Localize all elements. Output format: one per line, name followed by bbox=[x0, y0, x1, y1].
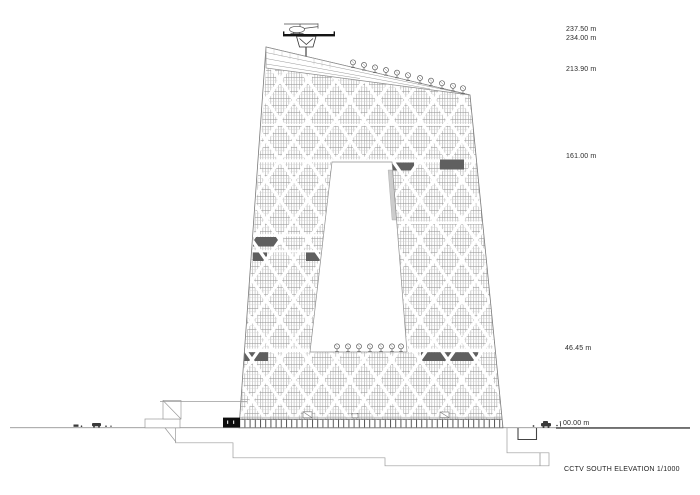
entrance-block bbox=[223, 418, 240, 428]
satellite-dish-icon bbox=[373, 65, 378, 73]
elevation-label-46-45: 46.45 m bbox=[565, 345, 591, 352]
satellite-dish-icon bbox=[357, 344, 362, 352]
satellite-dish-icon bbox=[429, 78, 434, 86]
satellite-dish-icon bbox=[346, 344, 351, 352]
elevation-label-234-00: 234.00 m bbox=[566, 35, 596, 42]
satellite-dish-icon bbox=[440, 81, 445, 89]
elevation-label-213-90: 213.90 m bbox=[566, 66, 596, 73]
satellite-dish-icon bbox=[395, 70, 400, 78]
satellite-dish-icon bbox=[406, 73, 411, 81]
satellite-dish-icon bbox=[362, 62, 367, 70]
drawing-title-caption: CCTV SOUTH ELEVATION 1/1000 bbox=[564, 466, 680, 473]
elevation-drawing bbox=[0, 0, 700, 495]
dark-panel-161m bbox=[440, 160, 464, 170]
satellite-dish-icon bbox=[351, 60, 356, 68]
car-icon bbox=[74, 425, 79, 427]
elevation-label-00-00: 00.00 m bbox=[563, 420, 589, 427]
elevation-drawing-sheet: 237.50 m 234.00 m 213.90 m 161.00 m 46.4… bbox=[0, 0, 700, 495]
car-icon bbox=[541, 421, 551, 428]
helicopter-icon bbox=[284, 23, 318, 33]
ground-floor-strip bbox=[240, 417, 502, 428]
podium-dish-row bbox=[335, 344, 404, 352]
person-mark bbox=[560, 421, 561, 426]
satellite-dish-icon bbox=[384, 68, 389, 76]
elevation-label-237-50: 237.50 m bbox=[566, 26, 596, 33]
satellite-dish-icon bbox=[390, 344, 395, 352]
satellite-dish-icon bbox=[418, 76, 423, 84]
car-icon bbox=[92, 423, 101, 426]
sunken-trench bbox=[518, 428, 537, 440]
left-vehicle-group bbox=[74, 423, 112, 428]
elevation-label-161-00: 161.00 m bbox=[566, 153, 596, 160]
building-body bbox=[239, 68, 504, 428]
right-vehicle-group bbox=[533, 421, 562, 428]
satellite-dish-icon bbox=[399, 344, 404, 352]
satellite-dish-icon bbox=[335, 344, 340, 352]
satellite-dish-icon bbox=[461, 86, 466, 94]
satellite-dish-icon bbox=[379, 344, 384, 352]
satellite-dish-icon bbox=[451, 83, 456, 91]
satellite-dish-icon bbox=[368, 344, 373, 352]
